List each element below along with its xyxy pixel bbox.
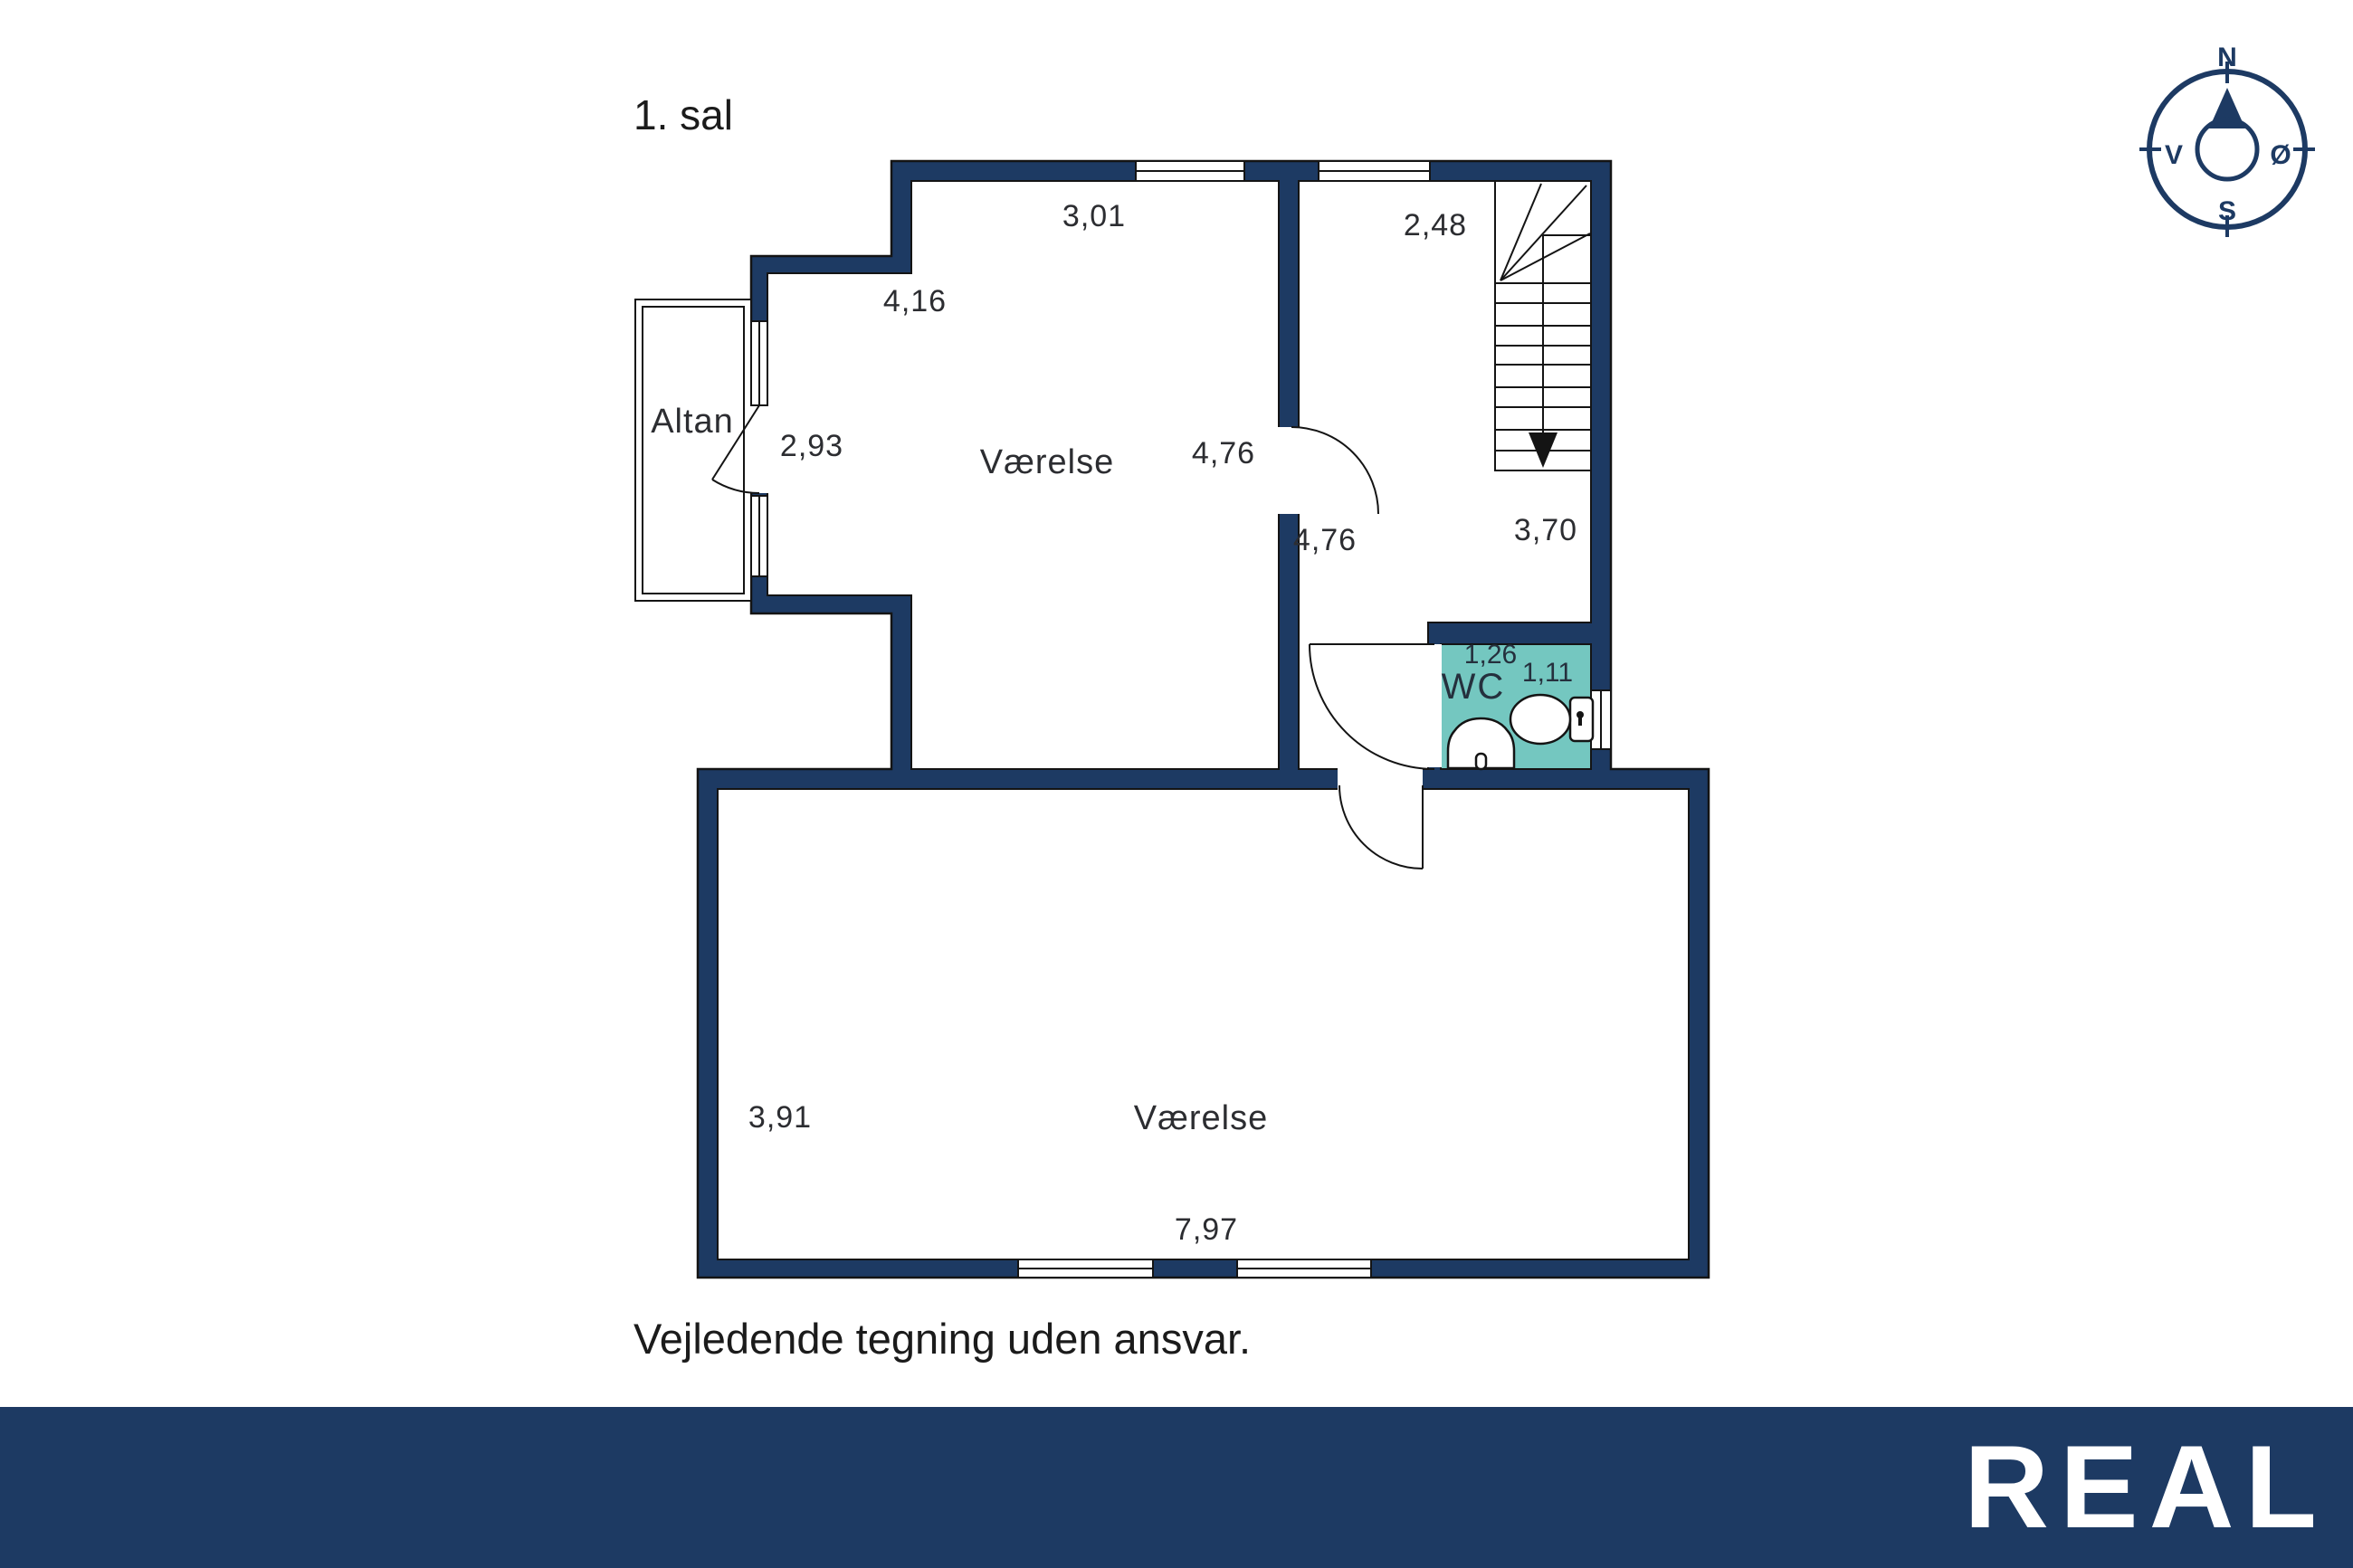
compass-label-north: N: [2217, 43, 2237, 72]
floor-plan-page: 1. sal: [0, 0, 2353, 1568]
stairs: [1495, 181, 1591, 470]
room-label-lower: Værelse: [1134, 1099, 1269, 1137]
passage-door-opening: [1338, 768, 1423, 790]
dim-hall-top: 2,48: [1404, 208, 1467, 242]
brand-bar: REAL: [0, 1407, 2353, 1568]
sink-icon: [1448, 718, 1514, 769]
window-top-upper-room: [1136, 161, 1244, 181]
compass-label-south: S: [2218, 196, 2236, 226]
compass-label-west: V: [2165, 140, 2183, 170]
upper-room-door-opening: [1278, 427, 1300, 514]
wc-door-opening: [1427, 644, 1442, 767]
dim-upper-room-west: 4,16: [883, 284, 947, 318]
window-bottom-east: [1237, 1259, 1371, 1278]
dim-lower-room-west: 3,91: [748, 1100, 812, 1135]
balcony-outer-rail: [635, 299, 751, 601]
balcony-outline: [635, 299, 751, 601]
room-label-upper: Værelse: [980, 443, 1115, 481]
dim-wc-depth: 1,11: [1522, 658, 1573, 688]
dim-upper-room-depth: 4,76: [1192, 436, 1255, 470]
dim-upper-room-top: 3,01: [1062, 199, 1126, 233]
room-label-balcony: Altan: [651, 403, 734, 441]
dim-lower-room-bottom: 7,97: [1175, 1212, 1238, 1247]
window-top-hall: [1319, 161, 1430, 181]
page-title: 1. sal: [633, 91, 733, 138]
room-label-wc: WC: [1442, 667, 1506, 707]
window-balcony-south: [751, 496, 767, 576]
dim-balcony-side: 2,93: [780, 429, 843, 463]
window-bottom-west: [1018, 1259, 1153, 1278]
window-balcony-north: [751, 321, 767, 405]
disclaimer-text: Vejledende tegning uden ansvar.: [633, 1315, 1251, 1363]
balcony-door-opening: [750, 405, 768, 493]
compass-label-east: Ø: [2270, 140, 2291, 170]
dim-hall-west: 4,76: [1293, 523, 1357, 557]
window-wc-east: [1591, 690, 1611, 749]
lower-room-floor: [718, 789, 1689, 1259]
toilet-icon: [1510, 695, 1593, 744]
brand-logo: REAL: [1964, 1421, 2328, 1553]
dim-wc-width: 1,26: [1464, 640, 1517, 670]
dim-hall-east: 3,70: [1514, 513, 1577, 547]
